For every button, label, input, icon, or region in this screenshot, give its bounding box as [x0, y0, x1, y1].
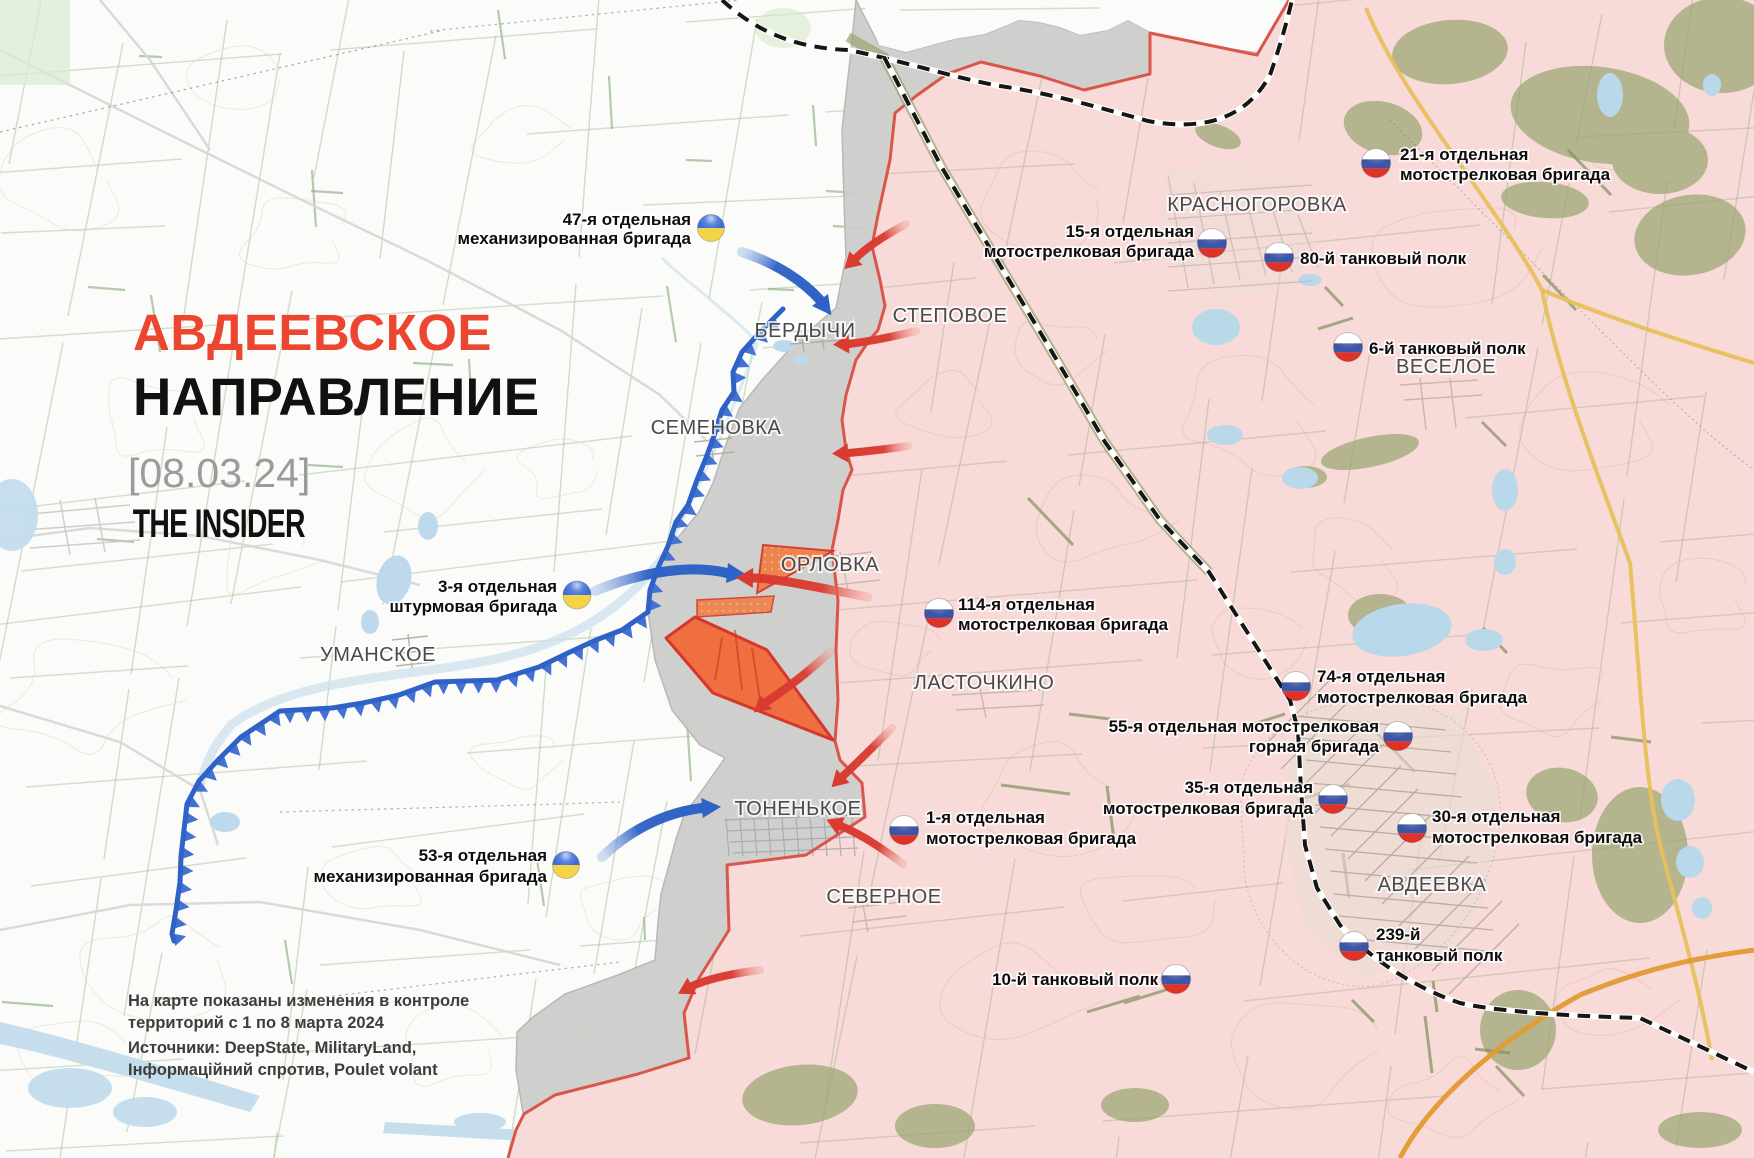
svg-text:На карте показаны изменения в: На карте показаны изменения в контроле	[128, 992, 469, 1010]
svg-text:мотострелковая бригада: мотострелковая бригада	[926, 829, 1137, 848]
svg-text:80-й танковый полк: 80-й танковый полк	[1300, 249, 1467, 268]
svg-text:НАПРАВЛЕНИЕ: НАПРАВЛЕНИЕ	[133, 368, 539, 427]
svg-text:мотострелковая бригада: мотострелковая бригада	[984, 242, 1195, 261]
svg-text:ОРЛОВКА: ОРЛОВКА	[781, 554, 879, 576]
svg-text:47-я отдельная: 47-я отдельная	[563, 210, 691, 229]
svg-text:10-й танковый полк: 10-й танковый полк	[992, 970, 1159, 989]
svg-text:THE INSIDER: THE INSIDER	[133, 502, 306, 546]
svg-text:114-я отдельная: 114-я отдельная	[958, 595, 1095, 614]
svg-text:механизированная бригада: механизированная бригада	[457, 229, 691, 248]
svg-text:мотострелковая бригада: мотострелковая бригада	[1432, 828, 1643, 847]
svg-text:21-я отдельная: 21-я отдельная	[1400, 145, 1528, 164]
svg-text:ЛАСТОЧКИНО: ЛАСТОЧКИНО	[914, 672, 1055, 694]
svg-text:35-я отдельная: 35-я отдельная	[1185, 778, 1313, 797]
svg-text:1-я отдельная: 1-я отдельная	[926, 808, 1045, 827]
svg-text:БЕРДЫЧИ: БЕРДЫЧИ	[755, 320, 856, 342]
svg-text:[08.03.24]: [08.03.24]	[128, 450, 310, 496]
svg-text:СЕВЕРНОЕ: СЕВЕРНОЕ	[826, 886, 941, 908]
svg-text:мотострелковая бригада: мотострелковая бригада	[1400, 165, 1611, 184]
svg-text:механизированная бригада: механизированная бригада	[313, 867, 547, 886]
svg-text:30-я отдельная: 30-я отдельная	[1432, 807, 1560, 826]
svg-text:мотострелковая бригада: мотострелковая бригада	[1103, 799, 1314, 818]
svg-text:СЕМЕНОВКА: СЕМЕНОВКА	[651, 417, 782, 439]
svg-text:КРАСНОГОРОВКА: КРАСНОГОРОВКА	[1167, 194, 1347, 216]
svg-text:ВЕСЕЛОЕ: ВЕСЕЛОЕ	[1396, 356, 1496, 378]
svg-text:СТЕПОВОЕ: СТЕПОВОЕ	[893, 305, 1008, 327]
svg-text:53-я отдельная: 53-я отдельная	[419, 846, 547, 865]
svg-text:АВДЕЕВКА: АВДЕЕВКА	[1378, 874, 1487, 896]
svg-text:ТОНЕНЬКОЕ: ТОНЕНЬКОЕ	[734, 798, 861, 820]
svg-text:15-я отдельная: 15-я отдельная	[1066, 222, 1194, 241]
svg-text:территорий с 1 по 8 марта 2024: территорий с 1 по 8 марта 2024	[128, 1014, 385, 1032]
svg-text:УМАНСКОЕ: УМАНСКОЕ	[320, 644, 436, 666]
svg-text:55-я отдельная мотострелковая: 55-я отдельная мотострелковая	[1109, 717, 1379, 736]
svg-text:Источники: DeepState, Military: Источники: DeepState, MilitaryLand,	[128, 1039, 416, 1057]
svg-text:3-я отдельная: 3-я отдельная	[438, 577, 557, 596]
svg-text:мотострелковая бригада: мотострелковая бригада	[958, 615, 1169, 634]
svg-text:мотострелковая бригада: мотострелковая бригада	[1317, 688, 1528, 707]
svg-text:Інформаційний спротив, Poulet: Інформаційний спротив, Poulet volant	[128, 1061, 438, 1079]
svg-text:штурмовая бригада: штурмовая бригада	[390, 597, 558, 616]
svg-text:горная бригада: горная бригада	[1249, 737, 1380, 756]
svg-text:239-й: 239-й	[1376, 925, 1420, 944]
svg-text:6-й танковый полк: 6-й танковый полк	[1369, 339, 1526, 358]
svg-text:танковый полк: танковый полк	[1376, 946, 1503, 965]
svg-text:74-я отдельная: 74-я отдельная	[1317, 667, 1445, 686]
svg-text:АВДЕЕВСКОЕ: АВДЕЕВСКОЕ	[133, 304, 492, 361]
